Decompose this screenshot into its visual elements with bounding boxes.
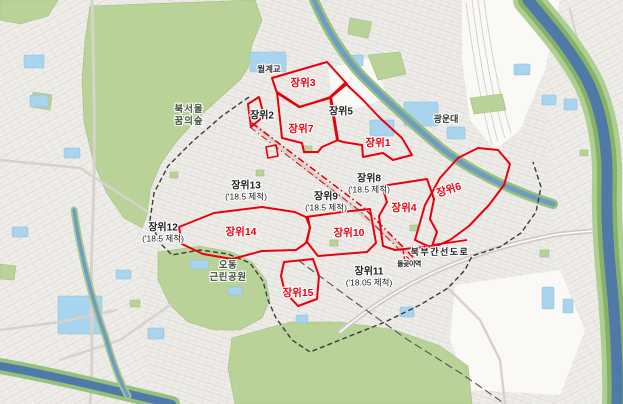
base-map [0,0,623,404]
map-canvas[interactable]: 장위1 장위2 장위3 장위4 장위5 장위6 장위7 장위8 ('18.5 제… [0,0,623,404]
